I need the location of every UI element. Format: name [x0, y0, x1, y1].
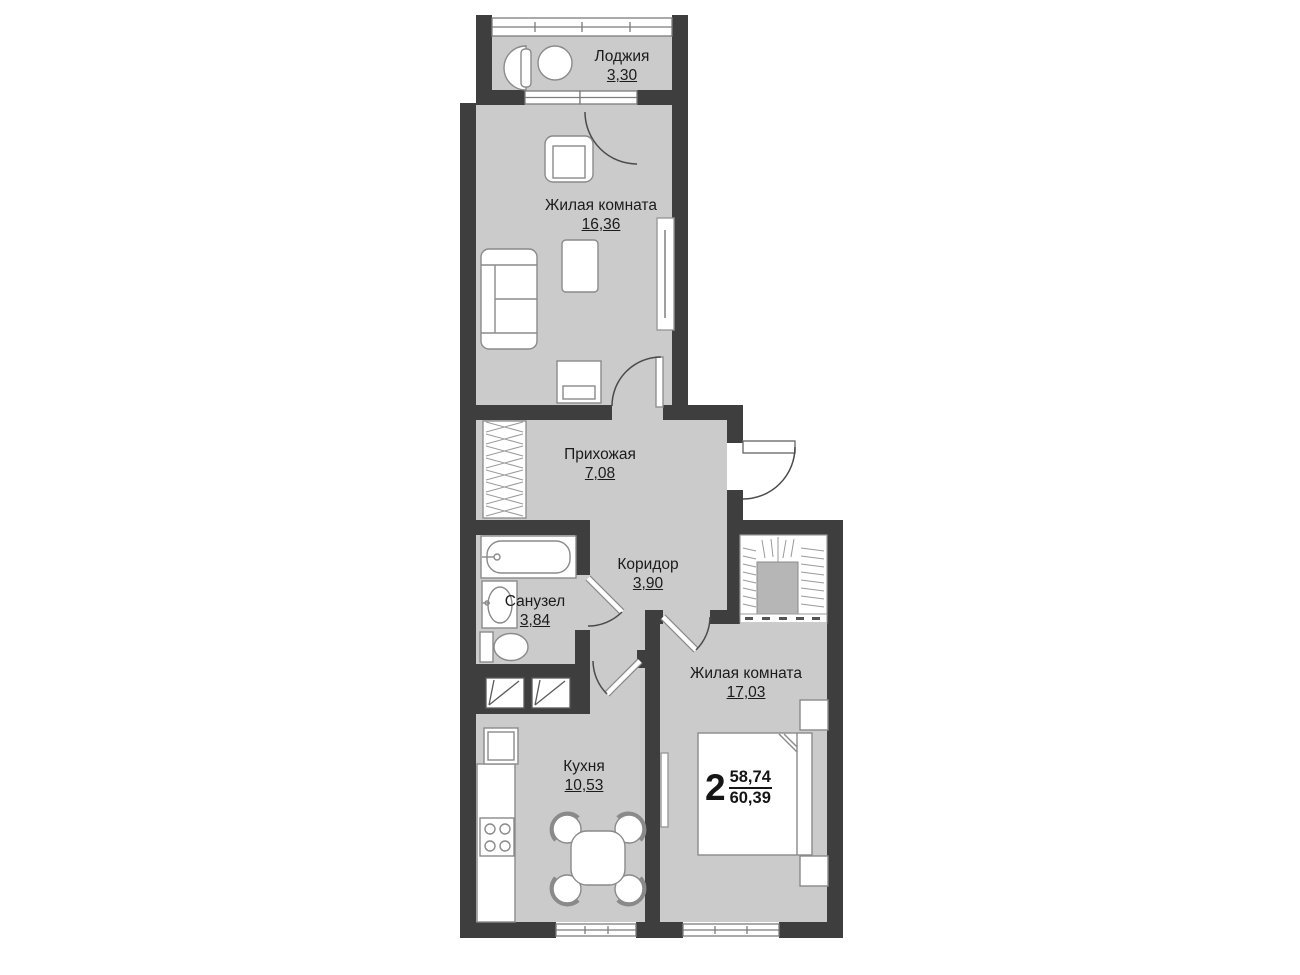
room-area: 16,36	[545, 215, 657, 234]
room-label-hallway: Прихожая 7,08	[564, 445, 636, 483]
room-name: Кухня	[563, 757, 604, 776]
room-area: 3,84	[505, 611, 565, 630]
apartment-total-area: 60,39	[729, 789, 772, 808]
room-label-living-room-2: Жилая комната 17,03	[690, 664, 802, 702]
room-name: Прихожая	[564, 445, 636, 464]
room-name: Лоджия	[595, 47, 650, 66]
room-area: 3,90	[617, 574, 678, 593]
room-label-bathroom: Санузел 3,84	[505, 592, 565, 630]
room-name: Коридор	[617, 555, 678, 574]
room-area: 17,03	[690, 683, 802, 702]
room-area: 10,53	[563, 776, 604, 795]
room-area: 3,30	[595, 66, 650, 85]
apartment-living-area: 58,74	[729, 768, 772, 789]
labels-layer: Лоджия 3,30 Жилая комната 16,36 Прихожая…	[0, 0, 1300, 975]
room-name: Санузел	[505, 592, 565, 611]
room-name: Жилая комната	[545, 196, 657, 215]
room-label-loggia: Лоджия 3,30	[595, 47, 650, 85]
apartment-area-fraction: 58,74 60,39	[729, 768, 772, 808]
apartment-rooms-count: 2	[705, 769, 726, 806]
room-name: Жилая комната	[690, 664, 802, 683]
room-label-living-room-1: Жилая комната 16,36	[545, 196, 657, 234]
floor-plan-canvas: Лоджия 3,30 Жилая комната 16,36 Прихожая…	[0, 0, 1300, 975]
apartment-summary-label: 2 58,74 60,39	[705, 768, 772, 808]
room-label-kitchen: Кухня 10,53	[563, 757, 604, 795]
room-label-corridor: Коридор 3,90	[617, 555, 678, 593]
room-area: 7,08	[564, 464, 636, 483]
